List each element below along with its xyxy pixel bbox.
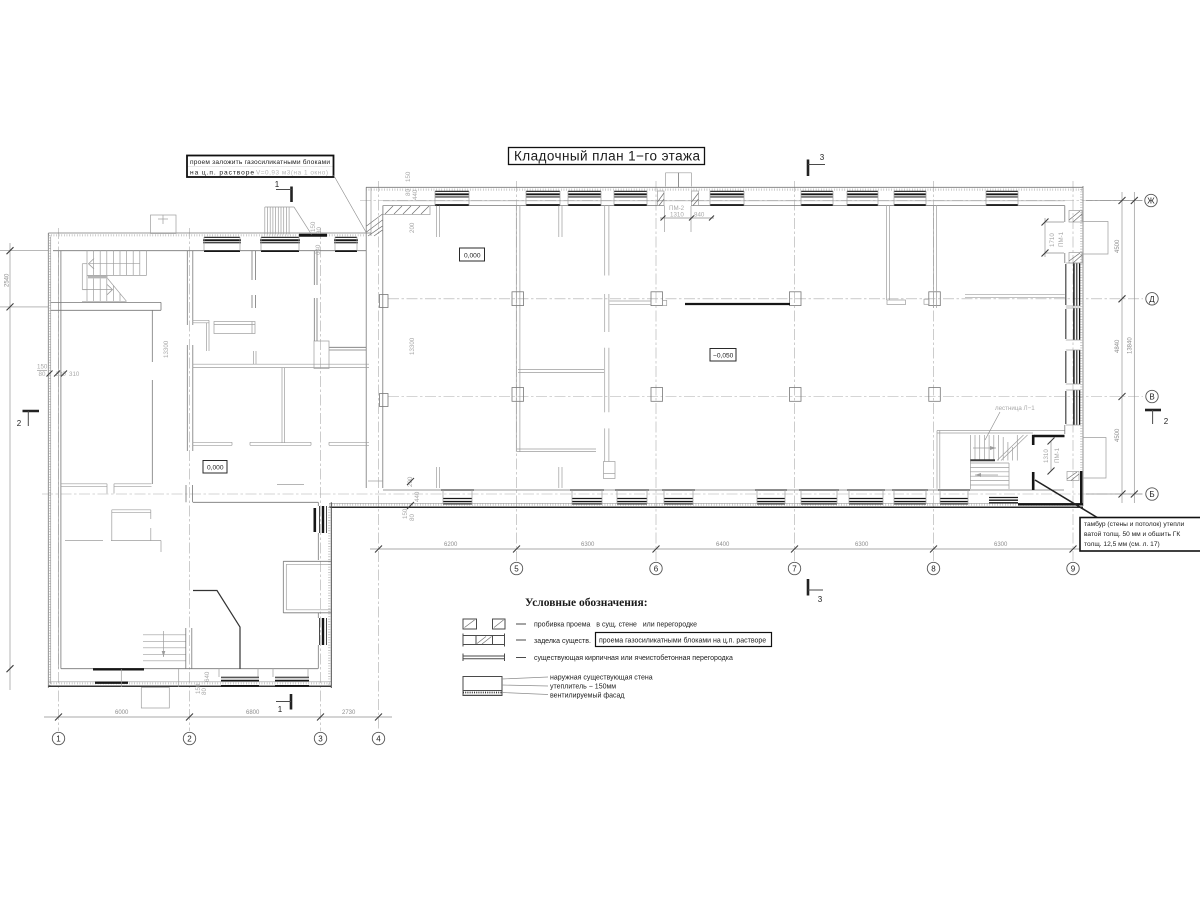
svg-text:2: 2 (17, 419, 22, 428)
svg-text:ватой толщ. 50 мм и обшить ГК: ватой толщ. 50 мм и обшить ГК (1084, 530, 1180, 538)
svg-text:150: 150 (37, 364, 48, 371)
svg-text:Ж: Ж (1147, 197, 1155, 206)
svg-text:4500: 4500 (1115, 428, 1121, 442)
svg-text:ПМ-1: ПМ-1 (1058, 231, 1065, 247)
svg-text:80: 80 (316, 227, 323, 234)
svg-text:840: 840 (694, 212, 705, 219)
svg-text:пробивка проема в сущ. стене: пробивка проема в сущ. стене или перегор… (534, 621, 697, 629)
svg-text:3: 3 (318, 735, 323, 744)
svg-text:80: 80 (405, 189, 412, 196)
svg-text:1: 1 (56, 735, 61, 744)
svg-text:80: 80 (201, 688, 208, 695)
svg-text:200: 200 (409, 222, 416, 233)
svg-text:утеплитель − 150мм: утеплитель − 150мм (550, 684, 616, 691)
svg-text:6300: 6300 (581, 542, 595, 548)
svg-text:13300: 13300 (409, 337, 416, 355)
svg-text:3: 3 (820, 153, 825, 162)
svg-text:440: 440 (414, 491, 421, 502)
svg-text:80: 80 (39, 371, 46, 378)
svg-text:толщ. 12,5 мм (см. л. 17): толщ. 12,5 мм (см. л. 17) (1084, 541, 1160, 548)
svg-text:В: В (1149, 393, 1154, 402)
svg-text:150: 150 (402, 508, 409, 519)
svg-text:8: 8 (931, 565, 936, 574)
svg-text:Д: Д (1149, 295, 1155, 304)
svg-text:вентилируемый фасад: вентилируемый фасад (550, 692, 624, 700)
svg-text:проем заложить газосиликатными: проем заложить газосиликатными блоками (190, 158, 330, 166)
svg-text:310: 310 (69, 371, 80, 378)
svg-text:лестница Л−1: лестница Л−1 (995, 405, 1035, 412)
svg-text:1: 1 (278, 705, 283, 714)
svg-text:Условные обозначения:: Условные обозначения: (525, 597, 648, 609)
svg-text:13840: 13840 (1128, 337, 1134, 354)
svg-text:0,000: 0,000 (207, 465, 224, 472)
svg-text:на ц.п. растворе: на ц.п. растворе (190, 170, 254, 177)
svg-text:1: 1 (275, 180, 280, 189)
svg-text:Кладочный план 1−го этажа: Кладочный план 1−го этажа (514, 149, 700, 164)
svg-text:6800: 6800 (246, 710, 260, 716)
svg-text:4840: 4840 (1115, 339, 1121, 353)
svg-text:2540: 2540 (5, 273, 11, 287)
svg-text:150: 150 (405, 171, 412, 182)
svg-text:640: 640 (315, 244, 322, 255)
svg-text:4: 4 (376, 735, 381, 744)
svg-text:6000: 6000 (115, 710, 129, 716)
svg-text:2: 2 (1164, 417, 1169, 426)
svg-text:6400: 6400 (716, 542, 730, 548)
svg-text:4500: 4500 (1115, 239, 1121, 253)
svg-text:0,000: 0,000 (464, 253, 481, 260)
svg-text:9: 9 (1071, 565, 1076, 574)
svg-text:существующая кирпичная или яче: существующая кирпичная или ячеистобетонн… (534, 654, 733, 662)
svg-text:5: 5 (514, 565, 519, 574)
svg-text:2730: 2730 (342, 710, 356, 716)
svg-text:13300: 13300 (163, 340, 170, 358)
svg-text:6: 6 (654, 565, 659, 574)
svg-text:тамбур (стены и потолок) утепл: тамбур (стены и потолок) утепли (1084, 520, 1185, 528)
svg-text:ПМ-1: ПМ-1 (1054, 447, 1061, 463)
svg-text:V=0,93 м3(на 1 окно): V=0,93 м3(на 1 окно) (256, 170, 328, 177)
svg-text:1710: 1710 (1049, 233, 1056, 247)
svg-text:−0,050: −0,050 (713, 353, 734, 360)
svg-text:проема газосиликатными блоками: проема газосиликатными блоками на ц.п. р… (599, 637, 766, 645)
svg-text:640: 640 (204, 671, 211, 682)
svg-text:наружная существующая стена: наружная существующая стена (550, 675, 653, 682)
svg-text:440: 440 (412, 189, 419, 200)
svg-text:3: 3 (818, 595, 823, 604)
svg-text:7: 7 (792, 565, 797, 574)
svg-text:1310: 1310 (1043, 449, 1050, 463)
svg-text:6300: 6300 (855, 542, 869, 548)
svg-text:1310: 1310 (670, 212, 684, 219)
svg-text:Б: Б (1149, 490, 1154, 499)
svg-text:6300: 6300 (994, 542, 1008, 548)
svg-text:80: 80 (409, 514, 416, 521)
svg-text:заделка существ.: заделка существ. (534, 638, 591, 645)
svg-text:6200: 6200 (444, 542, 458, 548)
svg-text:2: 2 (187, 735, 192, 744)
